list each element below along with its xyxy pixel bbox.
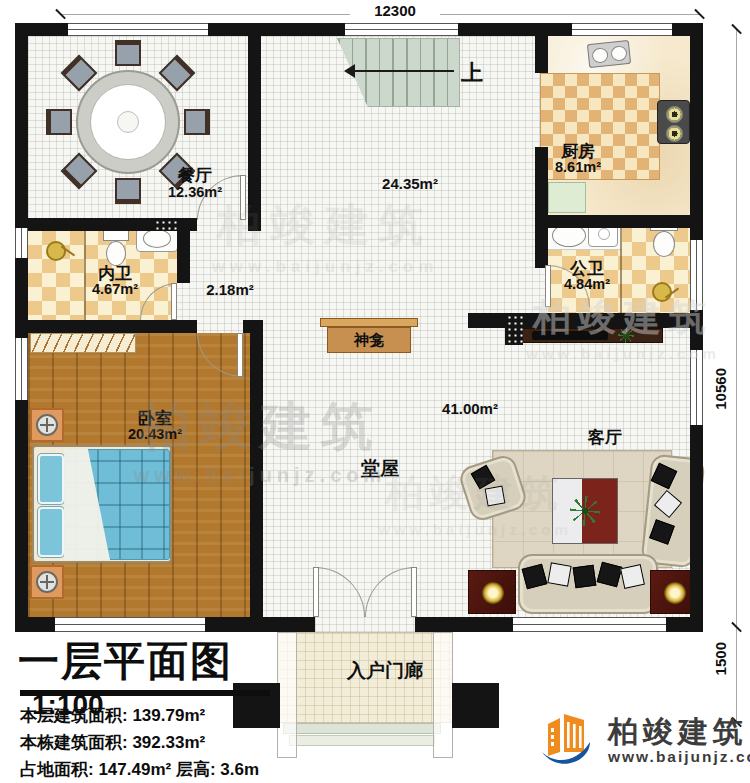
dining-chair — [115, 178, 141, 204]
dining-chair — [46, 109, 72, 135]
window — [513, 617, 666, 632]
wall — [535, 36, 548, 73]
porch-step-1 — [283, 723, 441, 734]
inner-bath-area: 4.67m² — [70, 281, 160, 297]
duct-vent — [505, 313, 523, 345]
hall-stair-zone-area: 24.35m² — [355, 175, 465, 192]
window — [68, 23, 208, 36]
public-bath-area: 4.84m² — [542, 276, 632, 292]
wall — [250, 320, 263, 632]
side-table-lamp — [663, 581, 687, 605]
sofa-pillow — [547, 562, 571, 586]
entrance-door-leaf-right — [411, 567, 417, 617]
window — [55, 617, 205, 632]
brand-logo: 柏竣建筑 www.baijunjz.com — [538, 704, 748, 776]
nightstand — [30, 565, 64, 599]
window — [15, 228, 28, 258]
hall-label: 堂屋 — [330, 456, 430, 482]
dining-table-hub — [117, 111, 139, 133]
inner-bath-door-leaf — [171, 283, 177, 320]
nightstand — [30, 408, 64, 442]
living-room-label: 客厅 — [550, 426, 660, 449]
public-bath-shower-icon — [652, 282, 672, 302]
title-underline — [20, 690, 270, 696]
stair-up-label: 上 — [457, 58, 487, 88]
dimension-top-width: 12300 — [350, 2, 440, 19]
wall — [180, 218, 197, 231]
sofa-pillow — [485, 486, 506, 507]
porch-label: 入户门廊 — [315, 658, 455, 684]
hall-area: 41.00m² — [415, 400, 525, 417]
shrine-table-top — [320, 318, 418, 327]
shrine-table-body: 神龛 — [327, 327, 411, 353]
nightstand-lamp — [36, 414, 58, 436]
entrance-door-leaf-left — [313, 567, 319, 617]
dimension-line-right-main — [736, 30, 737, 628]
wall — [248, 36, 261, 231]
stat-land-area: 占地面积: 147.49m² 层高: 3.6m — [20, 758, 259, 781]
stair-direction-line — [354, 70, 454, 72]
kitchen-sink — [587, 40, 631, 68]
porch-step-2 — [289, 735, 435, 746]
bed-pillow — [38, 507, 64, 557]
porch-column — [452, 683, 499, 728]
inner-bath-sink-basin — [143, 229, 171, 248]
dimension-porch-depth: 1500 — [712, 642, 729, 675]
wall — [666, 617, 703, 632]
window — [345, 23, 458, 36]
window — [690, 240, 703, 310]
brand-url: www.baijunjz.com — [608, 748, 750, 766]
tv-plant — [618, 328, 634, 343]
side-table-lamp — [481, 581, 505, 605]
wall — [15, 320, 197, 333]
dining-room-area: 12.36m² — [145, 184, 245, 200]
bedroom-door-leaf — [237, 333, 243, 377]
plan-title: 一层平面图 — [18, 638, 233, 684]
wall — [208, 23, 345, 36]
brand-name: 柏竣建筑 — [608, 712, 748, 753]
stair-arrow-head — [344, 64, 355, 78]
stat-building-area: 本栋建筑面积: 392.33m² — [20, 731, 205, 754]
stove — [657, 100, 690, 144]
kitchen-area: 8.61m² — [528, 159, 628, 175]
dimension-right-height: 10560 — [712, 368, 729, 410]
bedroom-area: 20.43m² — [105, 426, 205, 442]
flue-vent — [153, 218, 180, 231]
window — [690, 350, 703, 425]
wall — [458, 23, 572, 36]
side-table — [468, 570, 516, 614]
wall — [15, 218, 153, 231]
corridor-area: 2.18m² — [190, 281, 270, 298]
sofa-pillow — [573, 565, 597, 589]
window — [15, 338, 28, 400]
stat-floor-area: 本层建筑面积: 139.79m² — [20, 704, 205, 727]
wall — [177, 231, 190, 283]
window — [572, 23, 672, 36]
wall — [263, 617, 315, 632]
kitchen-sink-basin — [610, 45, 627, 62]
kitchen-sink-basin — [591, 47, 608, 64]
public-bath-toilet-bowl — [653, 231, 675, 257]
stove-burner — [666, 106, 683, 123]
stove-burner — [666, 125, 683, 142]
wall — [468, 313, 703, 328]
nightstand-lamp — [36, 571, 58, 593]
washing-machine-door — [598, 228, 610, 240]
floor-plan: 上 神龛 — [0, 0, 750, 783]
entrance-threshold — [315, 617, 415, 632]
porch-pilaster-right — [433, 632, 453, 758]
wardrobe — [30, 333, 136, 353]
dining-chair — [115, 40, 141, 66]
tv — [532, 331, 608, 340]
brand-logo-icon — [538, 706, 602, 770]
coffee-table-plant — [570, 496, 600, 526]
fridge — [548, 182, 586, 213]
dining-chair — [184, 109, 210, 135]
bed-pillow — [38, 454, 64, 504]
sofa-pillow — [620, 564, 645, 589]
inner-bath-shower-icon — [46, 241, 66, 261]
wall — [415, 617, 513, 632]
wall — [535, 215, 703, 228]
shrine-label: 神龛 — [354, 331, 384, 348]
